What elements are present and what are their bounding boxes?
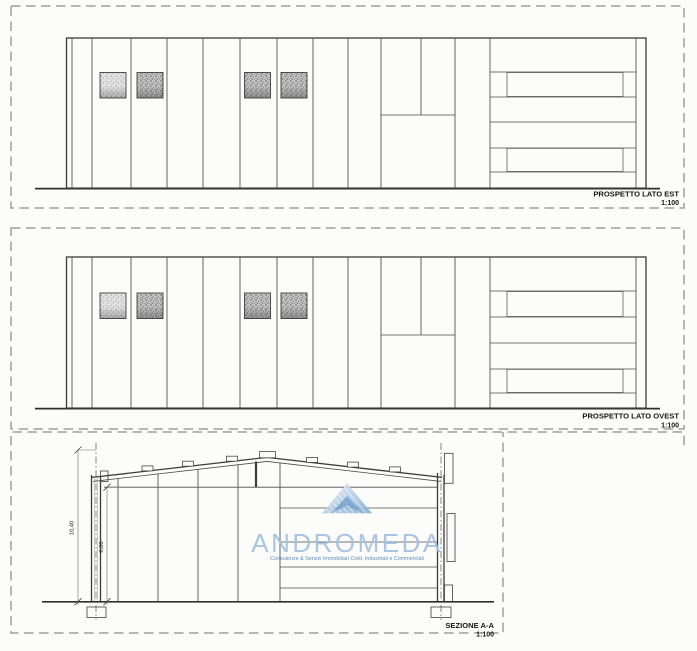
panel-joint-lines bbox=[72, 257, 636, 408]
logo-wordmark: ANDROMEDA bbox=[251, 528, 443, 558]
band-stipple bbox=[507, 292, 623, 317]
purlin bbox=[227, 456, 238, 461]
roof-rafters bbox=[92, 452, 442, 482]
purlin bbox=[348, 462, 359, 467]
ovest-elevation-drawing: PROSPETTO LATO OVEST 1:100 bbox=[0, 219, 697, 430]
ribbon-band-section bbox=[490, 291, 636, 393]
panel-scale: 1:100 bbox=[476, 632, 494, 639]
panel-sezione-aa: 10,40 8,00 bbox=[0, 430, 697, 651]
band-stipple bbox=[507, 369, 623, 392]
panel-prospetto-est: PROSPETTO LATO EST 1:100 bbox=[0, 0, 697, 219]
wall-girt bbox=[445, 453, 454, 483]
building-outline bbox=[67, 257, 647, 408]
eave-height-dimension: 8,00 bbox=[99, 541, 105, 552]
facade-drawing bbox=[35, 257, 660, 409]
left-column bbox=[87, 443, 108, 620]
panel-title: PROSPETTO LATO OVEST bbox=[582, 412, 679, 421]
logo-tagline: Consulenze & Servizi Immobiliari Civili,… bbox=[270, 556, 424, 562]
column-footing bbox=[87, 607, 106, 618]
building-outline bbox=[67, 38, 647, 188]
facade-drawing bbox=[35, 38, 660, 189]
andromeda-triangle-icon bbox=[322, 483, 372, 513]
section-drawing: 10,40 8,00 bbox=[0, 430, 697, 651]
panel-title: PROSPETTO LATO EST bbox=[593, 190, 679, 199]
panel-scale: 1:100 bbox=[661, 200, 679, 207]
purlin bbox=[390, 467, 401, 472]
est-elevation-drawing: PROSPETTO LATO EST 1:100 bbox=[0, 0, 697, 219]
drawing-sheet: PROSPETTO LATO EST 1:100 bbox=[0, 0, 697, 651]
panel-scale: 1:100 bbox=[661, 422, 679, 429]
wall-girt bbox=[445, 585, 453, 602]
purlin bbox=[142, 466, 153, 471]
band-stipple bbox=[507, 73, 623, 97]
purlin bbox=[183, 461, 194, 466]
wall-girt bbox=[447, 514, 455, 562]
panel-title: SEZIONE A-A bbox=[445, 621, 494, 630]
panel-prospetto-ovest: PROSPETTO LATO OVEST 1:100 bbox=[0, 219, 697, 430]
band-stipple bbox=[507, 148, 623, 171]
purlin bbox=[307, 457, 318, 462]
panel-border bbox=[11, 6, 684, 208]
panel-joint-lines bbox=[72, 38, 636, 188]
overall-height-dimension: 10,40 bbox=[70, 521, 76, 536]
ribbon-band-section bbox=[490, 72, 636, 172]
ridge-cap bbox=[260, 452, 276, 458]
panel-border bbox=[11, 228, 684, 429]
